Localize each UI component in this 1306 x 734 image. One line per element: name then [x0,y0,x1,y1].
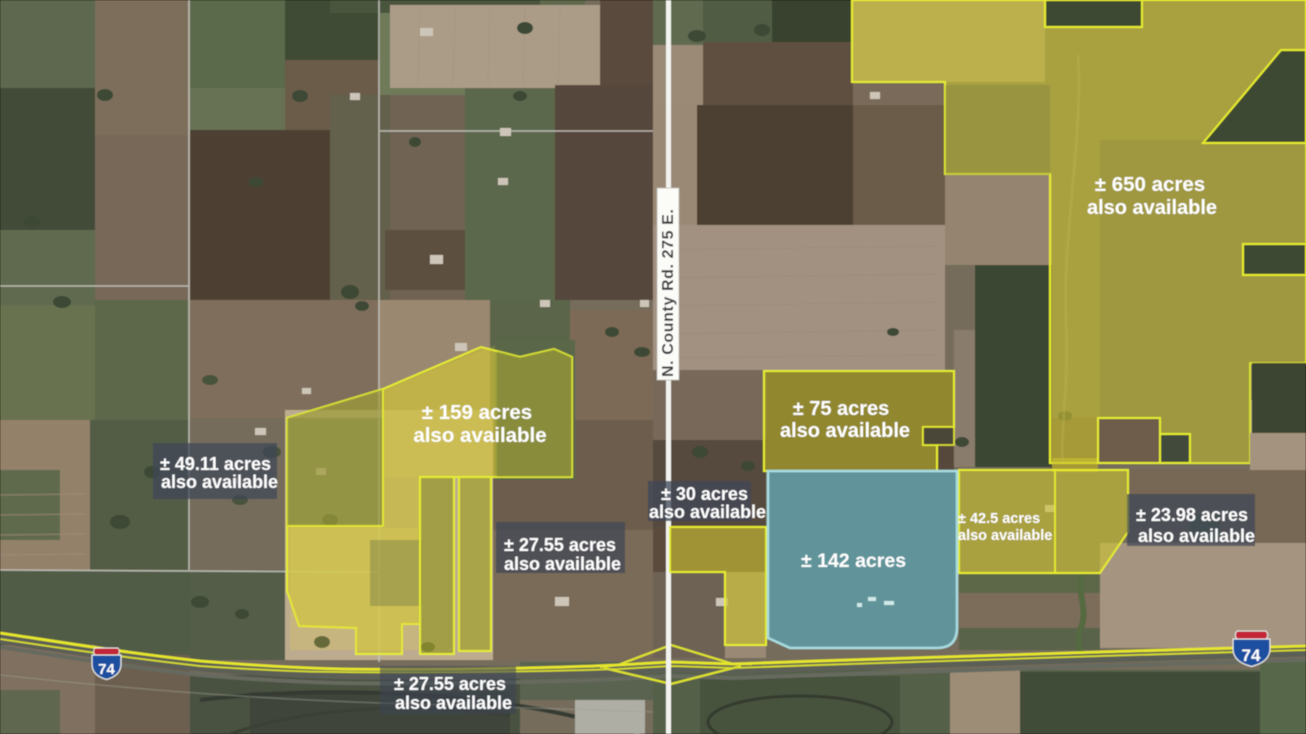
svg-text:also available: also available [958,528,1052,544]
svg-text:also available: also available [413,424,546,447]
svg-text:± 23.98 acres: ± 23.98 acres [1136,505,1248,525]
svg-text:also available: also available [1087,197,1217,219]
svg-text:± 49.11 acres: ± 49.11 acres [160,454,271,474]
svg-text:also available: also available [504,554,621,574]
svg-text:also available: also available [395,693,512,713]
svg-text:also available: also available [649,502,766,522]
svg-text:also available: also available [161,472,278,492]
svg-text:± 27.55 acres: ± 27.55 acres [504,535,616,555]
svg-text:± 30 acres: ± 30 acres [661,484,748,504]
svg-text:N. County Rd. 275 E.: N. County Rd. 275 E. [660,209,677,377]
svg-text:± 142 acres: ± 142 acres [801,550,906,572]
svg-text:74: 74 [98,661,115,678]
svg-text:± 75 acres: ± 75 acres [793,398,890,420]
svg-text:± 159 acres: ± 159 acres [422,401,532,424]
svg-text:also available: also available [780,420,910,442]
svg-text:± 650 acres: ± 650 acres [1095,173,1205,196]
svg-text:± 27.55 acres: ± 27.55 acres [394,674,506,694]
svg-text:also available: also available [1138,526,1255,546]
svg-text:74: 74 [1242,646,1261,665]
svg-text:± 42.5 acres: ± 42.5 acres [958,511,1040,527]
